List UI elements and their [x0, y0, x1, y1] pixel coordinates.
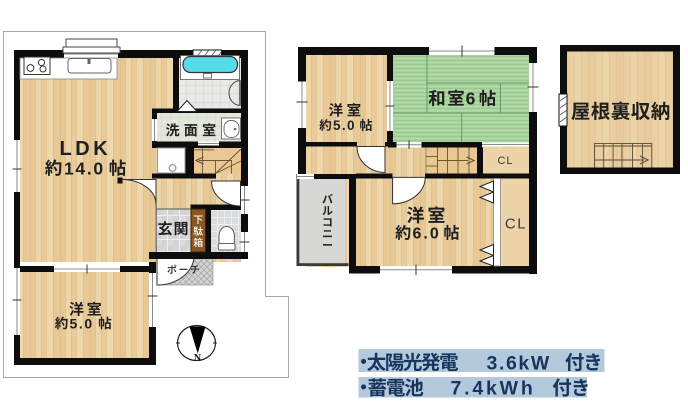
- svg-text:7.4kWh: 7.4kWh: [451, 378, 536, 400]
- svg-text:CL: CL: [497, 155, 513, 167]
- svg-text:3.6kW: 3.6kW: [487, 353, 551, 375]
- svg-text:N: N: [194, 353, 202, 364]
- svg-text:6: 6: [466, 89, 476, 109]
- svg-text:5.0: 5.0: [70, 316, 94, 332]
- svg-text:5.0: 5.0: [333, 118, 356, 133]
- svg-text:14.0: 14.0: [64, 158, 105, 178]
- svg-text:CL: CL: [505, 216, 527, 233]
- svg-text:6.0: 6.0: [413, 226, 441, 243]
- svg-text:LDK: LDK: [59, 138, 111, 160]
